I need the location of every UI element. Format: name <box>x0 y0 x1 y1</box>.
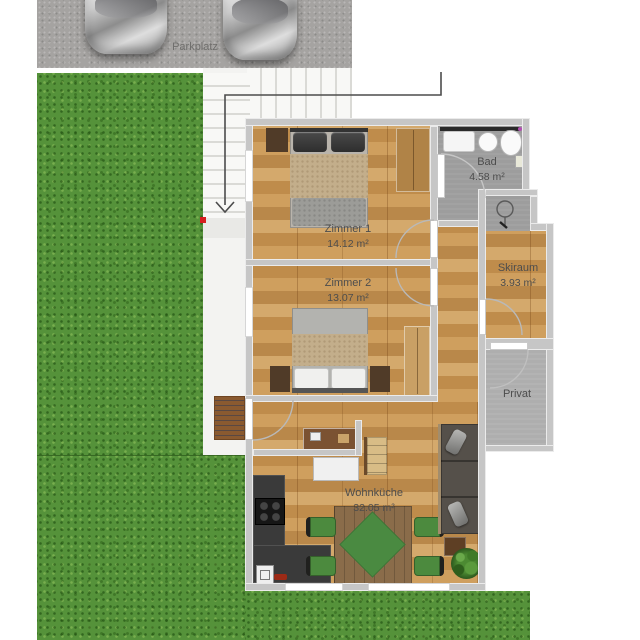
room-name: Zimmer 1 <box>325 222 371 237</box>
vestibule-floor <box>486 196 530 231</box>
toilet <box>500 130 522 156</box>
room-area: 13.07 m² <box>325 291 371 305</box>
room-name: Skiraum <box>498 261 538 276</box>
door-leaf-zimmer1 <box>430 220 438 258</box>
dining-chair <box>414 556 444 576</box>
room-name: Zimmer 2 <box>325 276 371 291</box>
sink <box>478 132 498 152</box>
car-windshield <box>95 0 157 18</box>
wall-kitchen-partition-h <box>253 449 362 456</box>
dishwasher-icon <box>260 570 270 580</box>
sideboard-item <box>310 432 321 441</box>
room-name: Bad <box>469 155 505 170</box>
parking-label: Parkplatz <box>172 41 218 53</box>
room-label-privat: Privat <box>503 387 531 402</box>
door-leaf-bad <box>437 154 445 198</box>
wall-top-outer <box>245 118 530 126</box>
bed-footboard <box>292 388 368 393</box>
window-zimmer2 <box>245 287 253 337</box>
wall-kitchen-partition-v <box>355 420 362 456</box>
stair-flight-left <box>203 73 250 218</box>
nightstand <box>270 366 290 392</box>
room-name: Privat <box>503 387 531 402</box>
wall-vestibule-top <box>482 189 538 196</box>
room-label-wohnkueche: Wohnküche 32.05 m² <box>345 486 403 515</box>
bed-pillow <box>331 368 366 389</box>
floor-plan-canvas: Parkplatz <box>0 0 640 640</box>
window-wohnkueche-1 <box>285 583 343 591</box>
stove <box>255 498 285 525</box>
kitchen-red-item <box>274 574 287 580</box>
kitchen-sideboard <box>303 428 359 450</box>
sofa-cushion <box>447 500 470 528</box>
door-leaf-skiraum <box>479 299 486 335</box>
car-windshield <box>232 0 288 24</box>
bed-zimmer2 <box>292 308 368 393</box>
wall-privat-bottom <box>478 445 554 452</box>
room-label-bad: Bad 4.58 m² <box>469 155 505 184</box>
doormat <box>214 396 245 440</box>
hallway-floor <box>438 227 478 402</box>
wall-wohnkueche-top <box>245 395 438 402</box>
room-area: 14.12 m² <box>325 237 371 251</box>
door-leaf-zimmer2 <box>430 268 438 306</box>
sideboard-item <box>337 433 350 444</box>
bed-pillow <box>293 132 327 152</box>
entry-marker-red <box>200 217 206 223</box>
room-name: Wohnküche <box>345 486 403 501</box>
lawn-left <box>37 73 203 455</box>
dishwasher <box>256 565 274 584</box>
bed-blanket <box>290 154 368 198</box>
parking-lot <box>37 0 352 68</box>
sofa-seam <box>441 496 482 498</box>
bed-blanket <box>292 334 368 366</box>
bed-pillow <box>331 132 365 152</box>
car-2 <box>223 0 297 60</box>
lawn-bottom-left <box>37 455 250 640</box>
dining-chair <box>306 556 336 576</box>
bathtub <box>443 131 475 152</box>
room-area: 32.05 m² <box>345 501 403 515</box>
dining-chair <box>306 517 336 537</box>
sofa <box>438 424 482 534</box>
stair-flight-top <box>247 68 352 118</box>
kitchen-unit-white <box>313 457 359 481</box>
sofa-seam <box>441 460 482 462</box>
wall-zimmer-divider <box>245 259 438 266</box>
room-label-skiraum: Skiraum 3.93 m² <box>498 261 538 290</box>
door-leaf-entrance <box>245 398 253 440</box>
room-label-zimmer1: Zimmer 1 14.12 m² <box>325 222 371 251</box>
room-label-zimmer2: Zimmer 2 13.07 m² <box>325 276 371 305</box>
wall-hall-vertical <box>478 189 486 591</box>
room-area: 3.93 m² <box>498 276 538 290</box>
car-1 <box>85 0 167 54</box>
room-area: 4.58 m² <box>469 170 505 184</box>
sofa-cushion <box>444 428 468 456</box>
window-wohnkueche-2 <box>368 583 450 591</box>
wall-bad-right <box>522 118 530 196</box>
shelf-unit <box>364 437 387 475</box>
door-leaf-privat <box>490 342 528 350</box>
wardrobe-zimmer1 <box>396 128 430 192</box>
bed-pillow <box>294 368 329 389</box>
bed-zimmer1 <box>290 128 368 228</box>
nightstand <box>370 366 390 392</box>
window-zimmer1 <box>245 150 253 202</box>
stair-landing <box>203 218 250 238</box>
nightstand <box>266 128 288 152</box>
wardrobe-zimmer2 <box>404 326 430 396</box>
lawn-under-building <box>245 591 530 640</box>
